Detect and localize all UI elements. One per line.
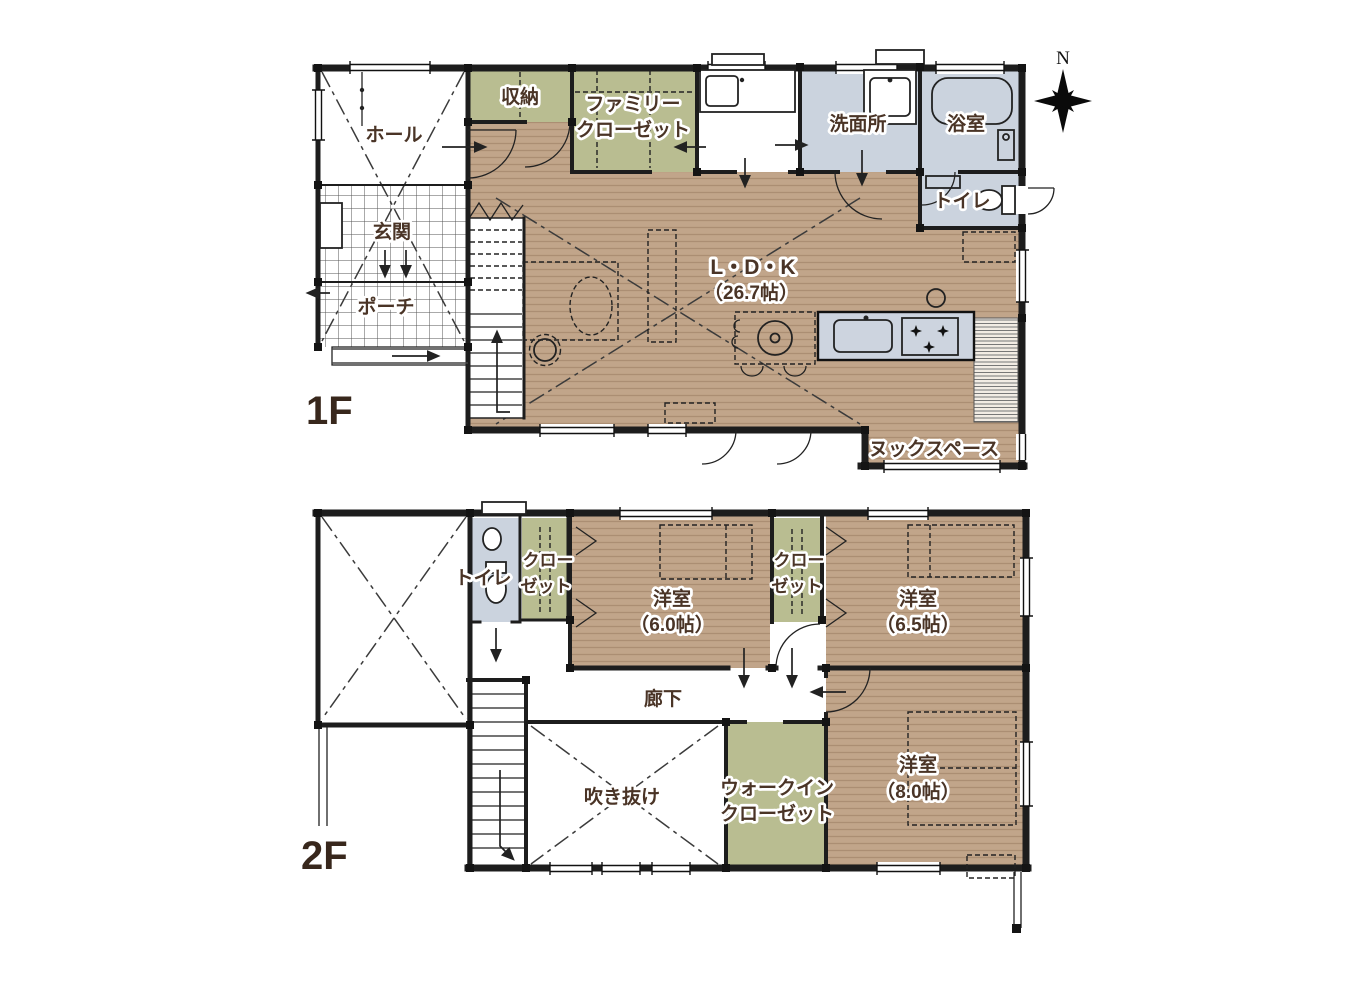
kitchen-island — [818, 312, 974, 360]
label-storage: 収納 — [501, 85, 539, 108]
label-closet-b-1: クロー — [774, 551, 825, 570]
label-bathroom: 浴室 — [947, 112, 985, 135]
label-bedroom-6-0-2: （6.0帖） — [630, 613, 713, 636]
deck-strip — [974, 318, 1018, 422]
label-bedroom-8-0-2: （8.0帖） — [876, 780, 959, 803]
compass-north-label: N — [1056, 48, 1070, 69]
label-nook: ヌックスペース — [869, 438, 999, 460]
label-bedroom-6-5-2: （6.5帖） — [876, 613, 959, 636]
label-toilet-2f: トイレ — [454, 568, 511, 589]
floor1-label: 1F — [306, 389, 353, 433]
label-bedroom-6-0-1: 洋室 — [653, 587, 691, 610]
label-void: 吹き抜け — [584, 785, 660, 808]
label-toilet-1f: トイレ — [933, 191, 990, 212]
floor-plan-canvas: ホール 玄関 ポーチ 収納 ファミリー クローゼット 洗面所 浴室 トイレ L・… — [0, 0, 1365, 984]
floor2-plan: トイレ クロー ゼット 洋室 （6.0帖） クロー ゼット 洋室 （6.5帖） … — [301, 502, 1033, 933]
pantry-counter — [700, 70, 795, 112]
label-porch: ポーチ — [357, 295, 414, 318]
stairs-2f — [468, 680, 526, 868]
label-washroom: 洗面所 — [829, 112, 886, 135]
floor1-plan: ホール 玄関 ポーチ 収納 ファミリー クローゼット 洗面所 浴室 トイレ L・… — [306, 50, 1054, 473]
label-family-closet-2: クローゼット — [576, 118, 690, 141]
label-wic-1: ウォークイン — [720, 777, 834, 799]
stairs-1f — [468, 203, 524, 418]
room-closet-b — [774, 518, 822, 622]
label-entrance: 玄関 — [373, 220, 411, 243]
floor-plan-page: ホール 玄関 ポーチ 収納 ファミリー クローゼット 洗面所 浴室 トイレ L・… — [0, 0, 1365, 984]
label-wic-2: クローゼット — [720, 802, 834, 825]
label-family-closet-1: ファミリー — [585, 94, 680, 115]
label-ldk-1: L・D・K — [710, 256, 795, 279]
label-ldk-2: （26.7帖） — [704, 281, 798, 304]
label-closet-a-1: クロー — [523, 551, 574, 570]
floor2-label: 2F — [301, 834, 348, 878]
label-corridor: 廊下 — [644, 687, 682, 710]
shoe-cabinet — [320, 203, 342, 248]
label-bedroom-8-0-1: 洋室 — [899, 753, 937, 776]
label-closet-b-2: ゼット — [772, 576, 823, 596]
label-closet-a-2: ゼット — [521, 576, 572, 596]
compass: N — [1034, 48, 1092, 133]
label-bedroom-6-5-1: 洋室 — [899, 587, 937, 610]
label-hall: ホール — [365, 125, 422, 146]
